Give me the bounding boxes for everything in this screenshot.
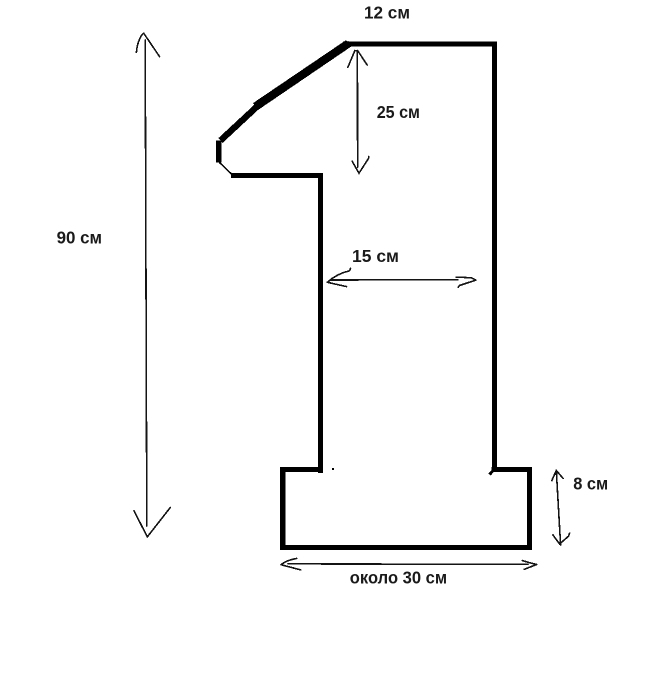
svg-text:12 см: 12 см: [364, 2, 410, 22]
svg-text:90 см: 90 см: [57, 227, 102, 247]
svg-text:15 см: 15 см: [352, 246, 399, 266]
svg-text:8 см: 8 см: [573, 474, 608, 494]
svg-text:25 см: 25 см: [377, 102, 420, 122]
svg-text:около 30 см: около 30 см: [350, 567, 447, 587]
